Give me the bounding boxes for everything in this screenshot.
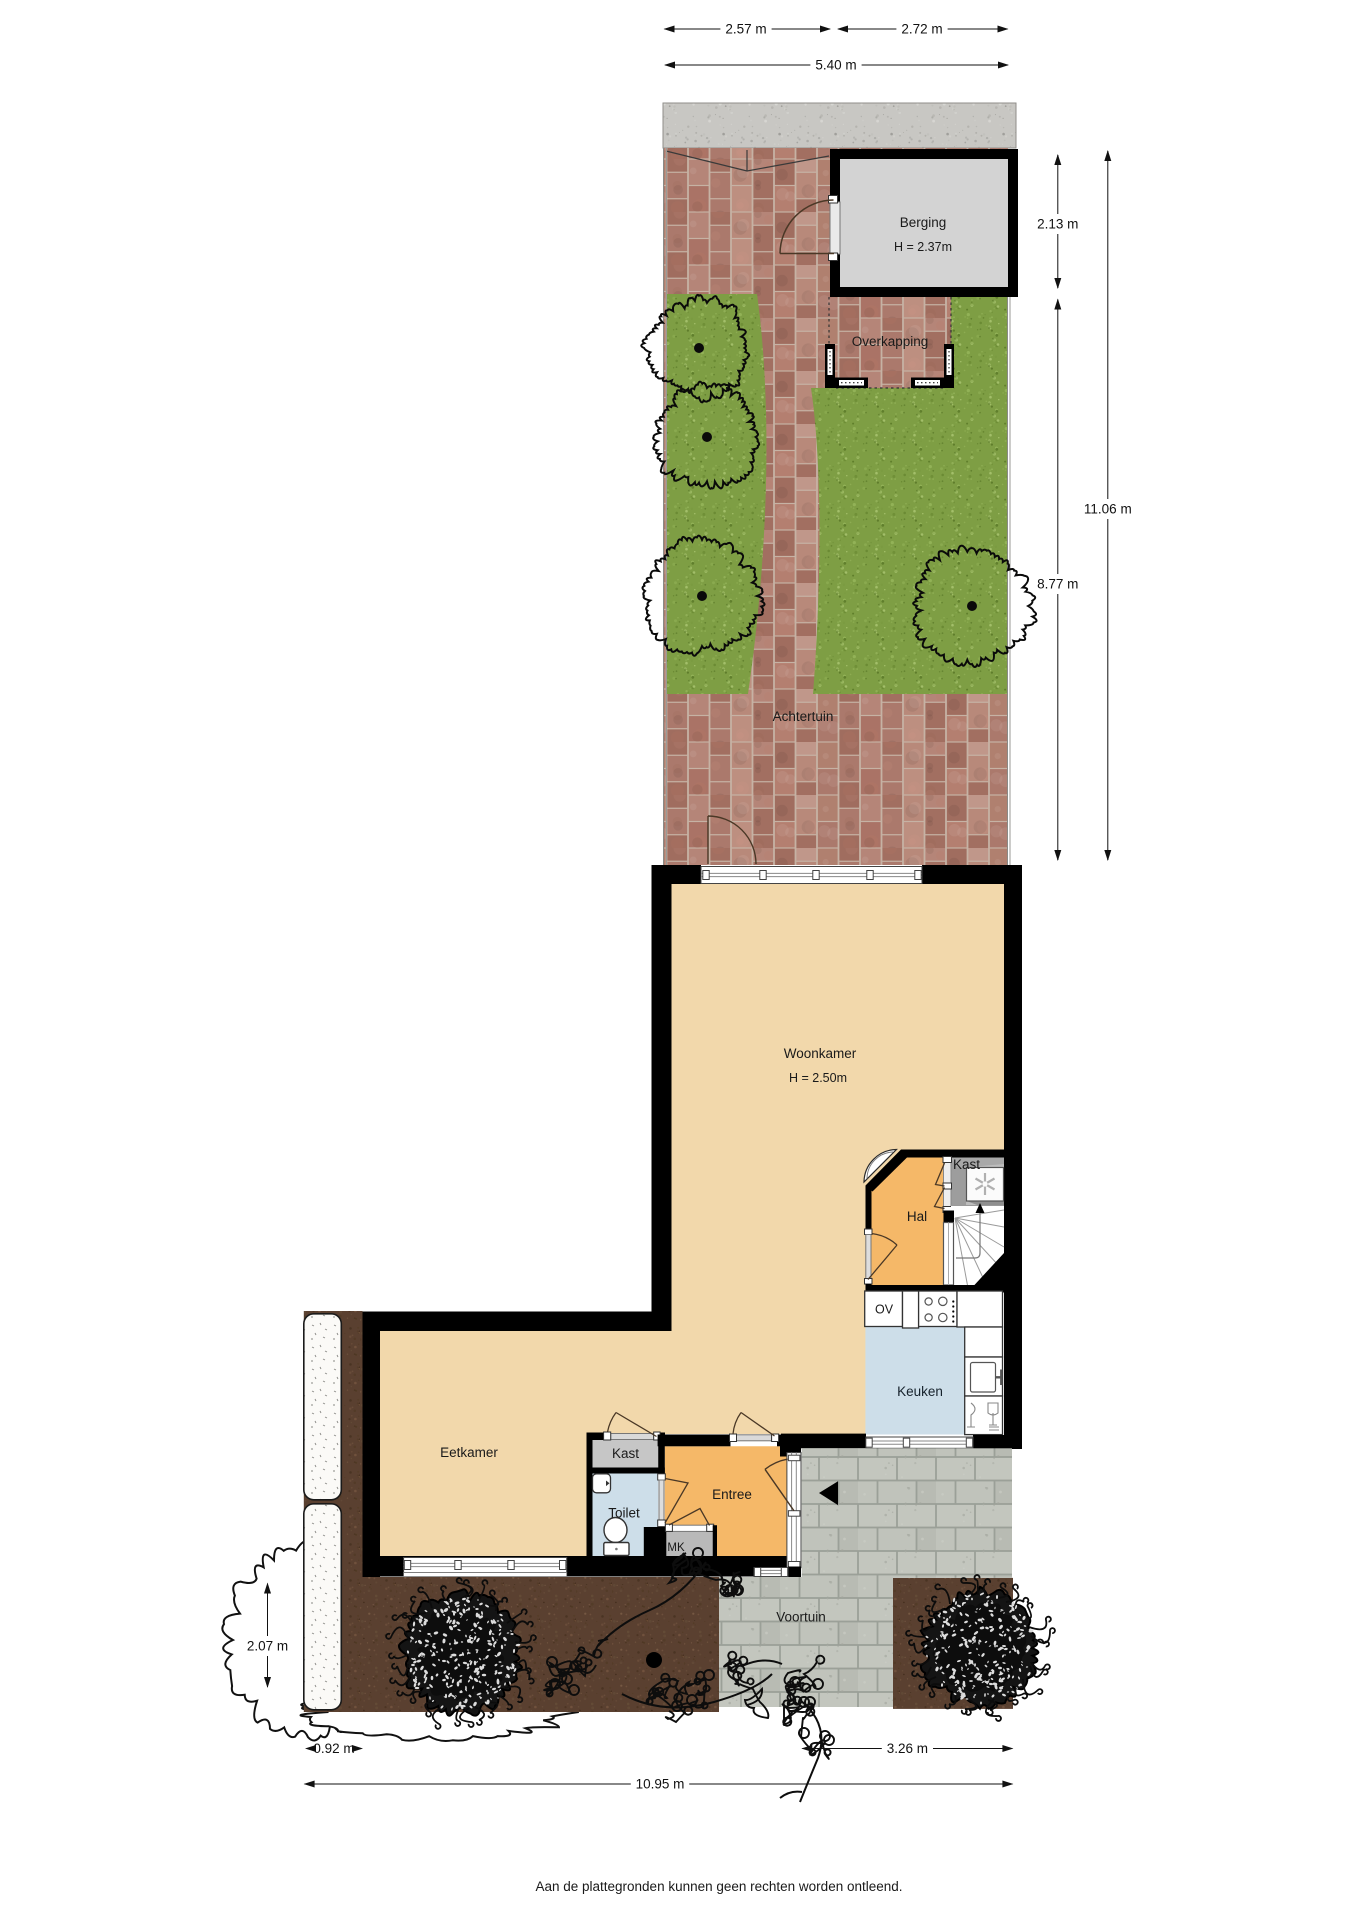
svg-text:11.06 m: 11.06 m [1084, 502, 1132, 517]
svg-text:0.92 m: 0.92 m [313, 1741, 354, 1756]
svg-text:MK: MK [667, 1542, 685, 1554]
svg-text:2.07 m: 2.07 m [247, 1639, 288, 1654]
svg-text:H = 2.37m: H = 2.37m [894, 240, 952, 254]
svg-text:3.26 m: 3.26 m [887, 1741, 928, 1756]
svg-text:Hal: Hal [907, 1209, 927, 1224]
svg-text:OV: OV [875, 1303, 894, 1317]
svg-text:Woonkamer: Woonkamer [784, 1046, 857, 1061]
svg-text:2.57 m: 2.57 m [725, 22, 766, 37]
svg-text:Toilet: Toilet [608, 1506, 640, 1521]
svg-text:Aan de plattegronden kunnen ge: Aan de plattegronden kunnen geen rechten… [535, 1879, 902, 1894]
svg-text:Berging: Berging [900, 215, 947, 230]
svg-text:Entree: Entree [712, 1487, 752, 1502]
svg-text:8.77 m: 8.77 m [1037, 577, 1078, 592]
svg-text:Achtertuin: Achtertuin [773, 709, 834, 724]
svg-text:Eetkamer: Eetkamer [440, 1445, 498, 1460]
svg-text:2.72 m: 2.72 m [901, 22, 942, 37]
svg-text:Overkapping: Overkapping [852, 334, 929, 349]
svg-text:Kast: Kast [953, 1157, 980, 1172]
svg-text:Keuken: Keuken [897, 1384, 943, 1399]
svg-text:Kast: Kast [612, 1446, 639, 1461]
svg-text:10.95 m: 10.95 m [636, 1777, 685, 1792]
svg-text:Voortuin: Voortuin [776, 1610, 826, 1625]
svg-text:5.40 m: 5.40 m [815, 58, 856, 73]
svg-text:2.13 m: 2.13 m [1037, 217, 1078, 232]
svg-text:H = 2.50m: H = 2.50m [789, 1071, 847, 1085]
